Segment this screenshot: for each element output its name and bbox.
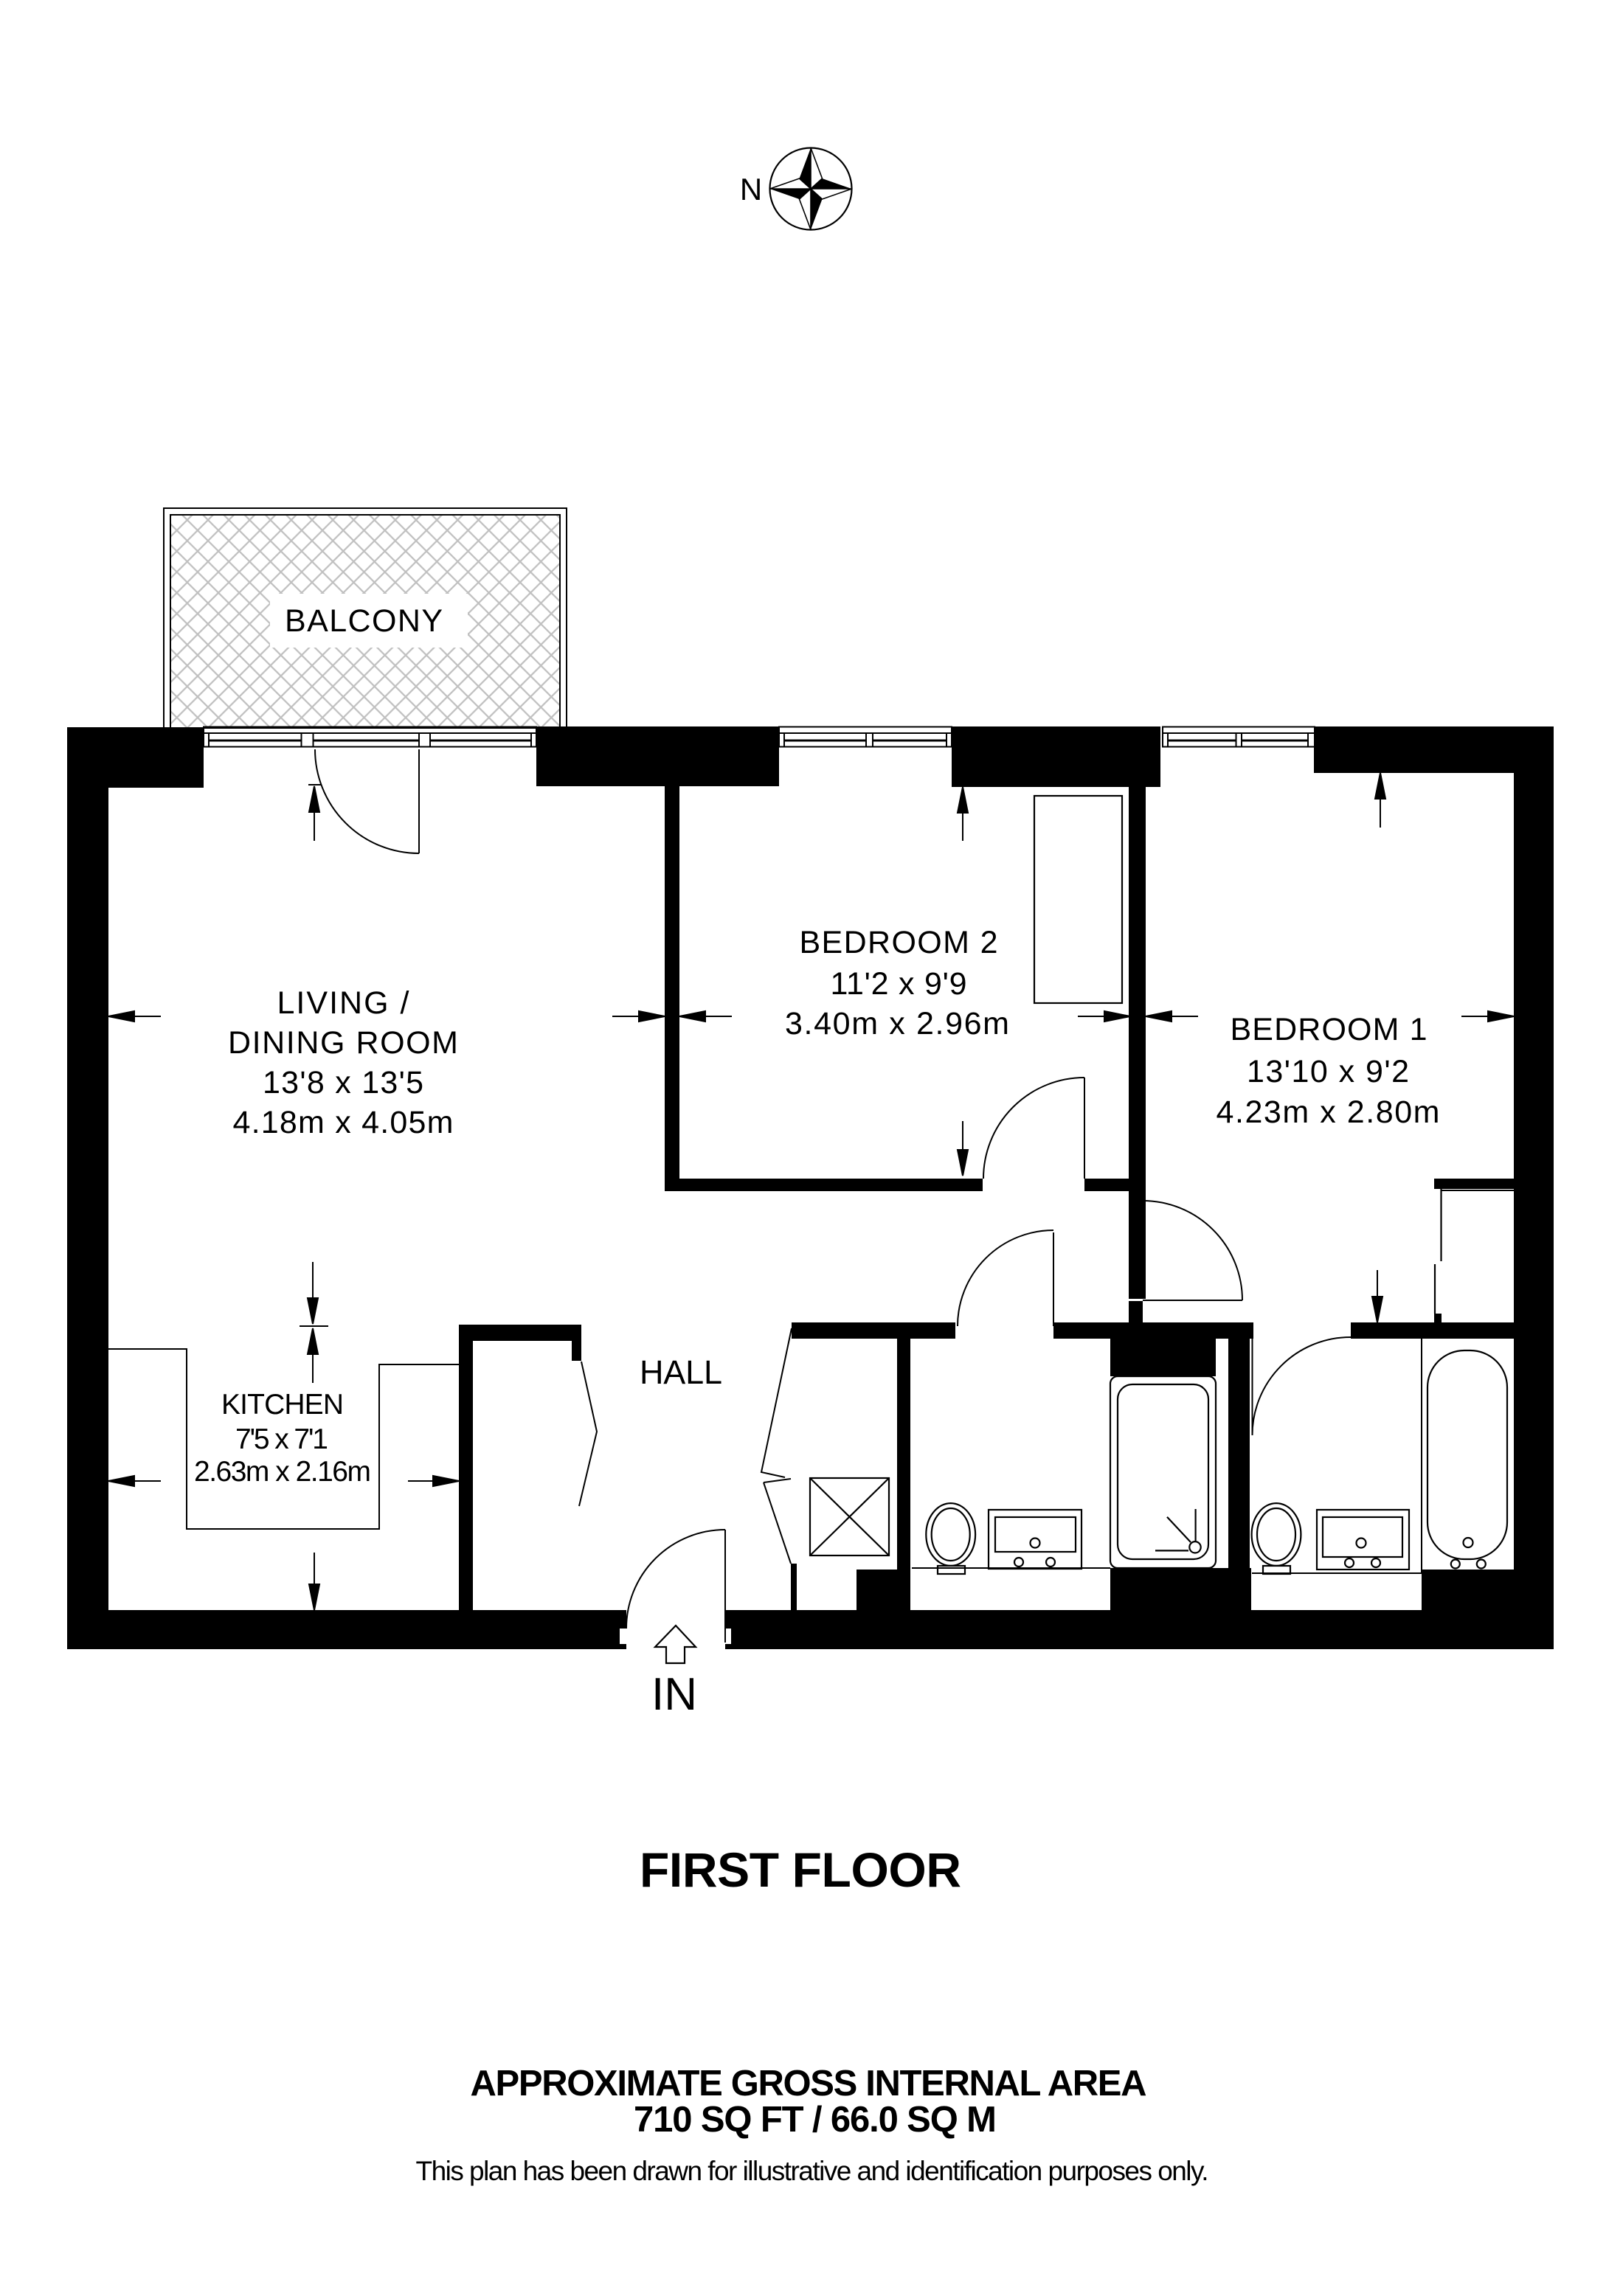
svg-text:4.18m x 4.05m: 4.18m x 4.05m (233, 1105, 454, 1140)
svg-text:This plan has been drawn for i: This plan has been drawn for illustrativ… (416, 2156, 1209, 2186)
svg-text:BEDROOM 1: BEDROOM 1 (1231, 1012, 1428, 1047)
svg-text:BALCONY: BALCONY (285, 603, 443, 639)
svg-text:N: N (740, 172, 762, 207)
svg-text:LIVING /: LIVING / (277, 985, 409, 1021)
svg-text:7'5 x 7'1: 7'5 x 7'1 (235, 1423, 328, 1455)
svg-text:HALL: HALL (640, 1353, 722, 1391)
svg-text:APPROXIMATE GROSS INTERNAL ARE: APPROXIMATE GROSS INTERNAL AREA (471, 2064, 1147, 2103)
svg-text:KITCHEN: KITCHEN (221, 1389, 344, 1421)
svg-text:710 SQ FT / 66.0 SQ M: 710 SQ FT / 66.0 SQ M (634, 2100, 997, 2140)
svg-text:BEDROOM 2: BEDROOM 2 (800, 925, 998, 960)
svg-text:11'2 x 9'9: 11'2 x 9'9 (831, 966, 967, 1002)
svg-text:FIRST FLOOR: FIRST FLOOR (640, 1842, 961, 1897)
svg-text:13'8 x 13'5: 13'8 x 13'5 (263, 1065, 423, 1100)
svg-text:DINING ROOM: DINING ROOM (228, 1025, 458, 1061)
svg-text:2.63m x 2.16m: 2.63m x 2.16m (194, 1456, 371, 1488)
svg-text:4.23m x 2.80m: 4.23m x 2.80m (1217, 1095, 1440, 1130)
svg-text:IN: IN (651, 1669, 697, 1720)
svg-text:3.40m x 2.96m: 3.40m x 2.96m (785, 1006, 1009, 1041)
